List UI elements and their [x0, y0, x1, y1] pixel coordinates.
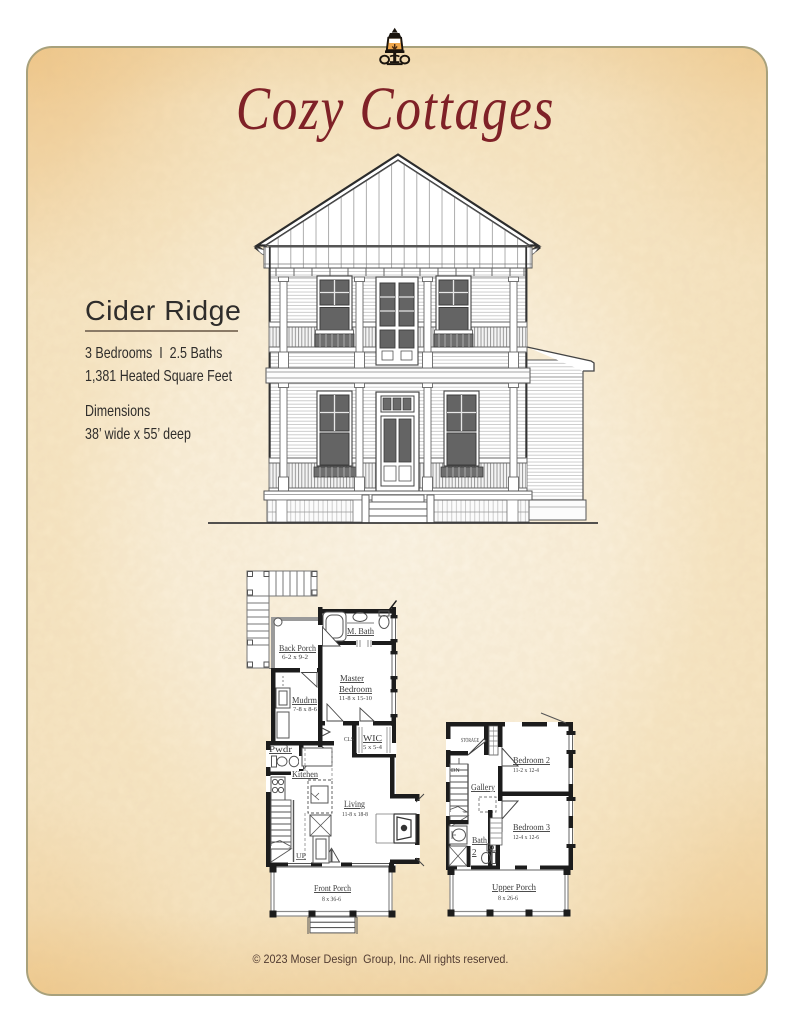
- svg-text:Living: Living: [344, 800, 365, 810]
- svg-text:DN: DN: [451, 768, 460, 774]
- svg-text:Back Porch: Back Porch: [279, 643, 316, 653]
- svg-text:11-2 x 12-4: 11-2 x 12-4: [513, 768, 539, 774]
- svg-text:12-4 x 12-6: 12-4 x 12-6: [513, 835, 539, 841]
- svg-text:Bedroom 2: Bedroom 2: [513, 755, 550, 765]
- svg-text:6-2 x 9-2: 6-2 x 9-2: [282, 654, 308, 661]
- svg-text:Bedroom: Bedroom: [339, 684, 372, 694]
- svg-text:Pwdr: Pwdr: [269, 744, 292, 754]
- svg-text:Upper Porch: Upper Porch: [492, 882, 536, 892]
- svg-text:UP: UP: [296, 852, 306, 860]
- svg-text:Master: Master: [340, 673, 364, 683]
- svg-text:5 x 5-4: 5 x 5-4: [363, 745, 382, 751]
- svg-text:STORAGE: STORAGE: [461, 737, 479, 744]
- svg-text:11-8 x 15-10: 11-8 x 15-10: [339, 696, 372, 702]
- svg-text:8 x 36-6: 8 x 36-6: [322, 896, 342, 903]
- svg-text:2: 2: [472, 847, 477, 857]
- svg-text:7-8 x 8-6: 7-8 x 8-6: [293, 707, 317, 713]
- svg-text:Bath: Bath: [472, 835, 487, 845]
- svg-text:11-8 x 18-8: 11-8 x 18-8: [342, 812, 368, 818]
- svg-text:Front Porch: Front Porch: [314, 883, 351, 893]
- svg-text:CLS: CLS: [344, 737, 354, 743]
- svg-text:M. Bath: M. Bath: [347, 626, 374, 636]
- svg-text:8 x 26-6: 8 x 26-6: [498, 895, 519, 902]
- svg-text:Bedroom 3: Bedroom 3: [513, 822, 550, 832]
- svg-text:WIC: WIC: [363, 733, 382, 743]
- svg-text:Mudrm: Mudrm: [292, 695, 317, 705]
- svg-text:Gallery: Gallery: [471, 782, 495, 792]
